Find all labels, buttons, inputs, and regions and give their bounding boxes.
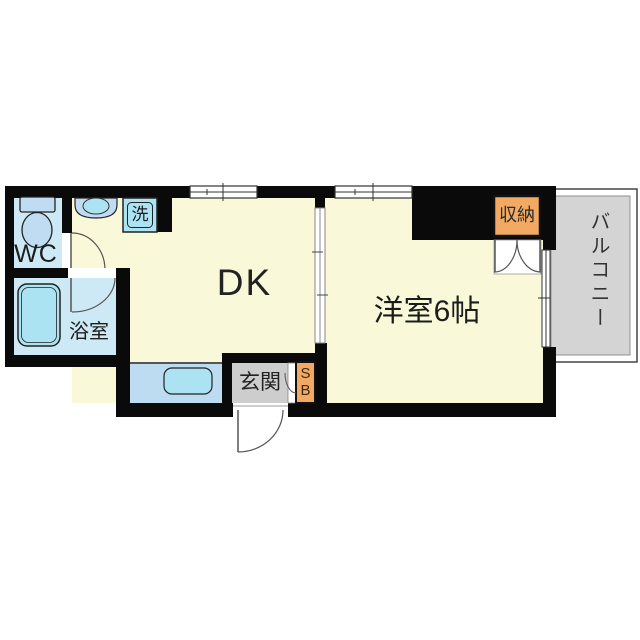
wall-right-lower — [543, 347, 556, 403]
wall-bottom — [116, 403, 556, 417]
wall-right-upper — [543, 186, 556, 250]
window-western-top — [335, 183, 412, 201]
entrance-door — [233, 403, 288, 452]
floorplan-canvas: WC 浴室 洗 DK 洋室6帖 収納 玄関 SB バルコニー — [0, 0, 640, 640]
floorplan-drawing — [0, 0, 640, 640]
kitchen-sink-icon — [164, 368, 212, 394]
closet-doors — [494, 240, 541, 274]
wall-bathroom-bottom — [5, 355, 130, 367]
balcony-label: バルコニー — [583, 211, 609, 361]
entrance-inner-door-strip — [288, 363, 296, 403]
shoe-box-label: SB — [297, 366, 314, 399]
bathroom-label: 浴室 — [56, 321, 122, 343]
wall-stub-washer — [157, 198, 172, 232]
wc-label: WC — [10, 241, 62, 269]
wall-dk-left-lower — [116, 367, 130, 403]
window-dk-top — [190, 183, 257, 201]
wall-partition-lower — [315, 343, 327, 403]
washer-label: 洗 — [123, 206, 157, 225]
closet-label: 収納 — [494, 206, 540, 226]
wall-wc-bath-divider — [5, 268, 68, 278]
western-room-label: 洋室6帖 — [327, 295, 527, 328]
wall-bathroom-right — [116, 268, 130, 367]
entrance-label: 玄関 — [232, 371, 288, 394]
bathtub-icon — [18, 284, 60, 346]
wash-basin-icon — [75, 198, 117, 218]
dk-label: DK — [192, 263, 297, 304]
wall-partition-stub — [315, 198, 325, 208]
